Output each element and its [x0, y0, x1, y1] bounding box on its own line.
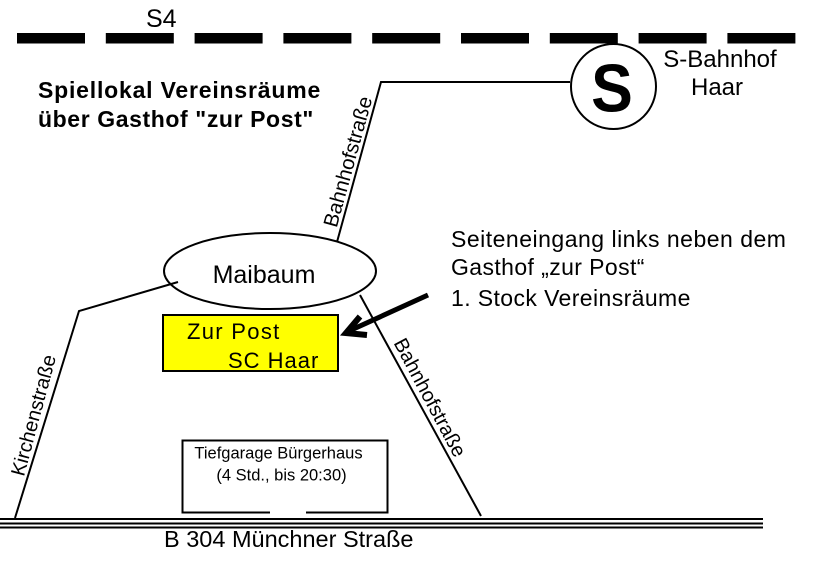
svg-text:Gasthof „zur Post“: Gasthof „zur Post“	[451, 254, 645, 280]
svg-text:Haar: Haar	[691, 74, 743, 101]
svg-text:Spiellokal Vereinsräume: Spiellokal Vereinsräume	[38, 77, 321, 103]
svg-text:S-Bahnhof: S-Bahnhof	[663, 46, 777, 73]
svg-text:S: S	[591, 50, 633, 126]
svg-text:S4: S4	[146, 5, 177, 33]
svg-text:1. Stock Vereinsräume: 1. Stock Vereinsräume	[451, 285, 691, 311]
svg-text:B 304 Münchner Straße: B 304 Münchner Straße	[164, 526, 414, 552]
svg-text:Zur Post: Zur Post	[187, 319, 281, 344]
svg-text:Bahnhofstraße: Bahnhofstraße	[319, 94, 377, 230]
svg-text:über Gasthof "zur Post": über Gasthof "zur Post"	[38, 106, 314, 132]
svg-text:(4 Std., bis 20:30): (4 Std., bis 20:30)	[216, 467, 346, 485]
svg-text:Seiteneingang links neben dem: Seiteneingang links neben dem	[451, 226, 786, 252]
svg-text:SC Haar: SC Haar	[228, 348, 319, 373]
svg-text:Tiefgarage Bürgerhaus: Tiefgarage Bürgerhaus	[194, 445, 362, 463]
svg-text:Bahnhofstraße: Bahnhofstraße	[389, 335, 470, 461]
svg-text:Kirchenstraße: Kirchenstraße	[7, 352, 60, 478]
svg-text:Maibaum: Maibaum	[213, 261, 316, 289]
